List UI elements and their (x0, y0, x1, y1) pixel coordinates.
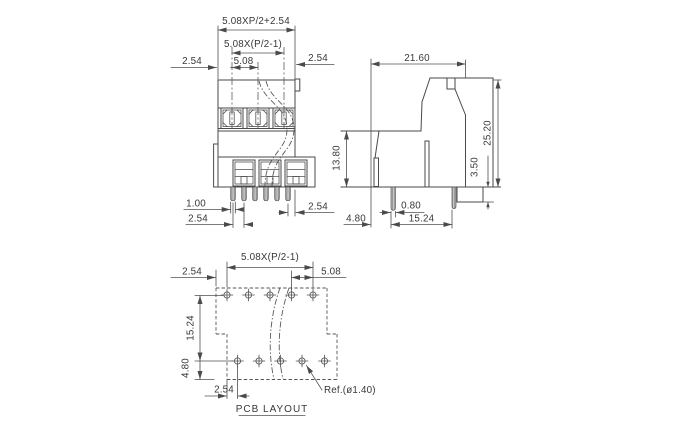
pcb-layout: 5.08X(P/2-1) 2.54 5.08 15.24 4.80 2.54 (171, 252, 376, 416)
pcb-hole-ref: Ref.(ø1.40) (324, 385, 376, 396)
dim-row-pitch: 15.24 (409, 214, 435, 225)
pcb-dim-stagger: 2.54 (214, 385, 234, 396)
pcb-layout-title: PCB LAYOUT (236, 404, 309, 415)
drawing-page: 5.08XP/2+2.54 5.08X(P/2-1) 2.54 5.08 2.5… (0, 0, 680, 440)
side-foot (457, 187, 483, 202)
front-dimensions-bottom: 1.00 2.54 2.54 (184, 190, 334, 228)
dim-overall-width: 5.08XP/2+2.54 (222, 16, 290, 27)
dim-pin-pitch: 2.54 (188, 214, 208, 225)
front-dimensions-top: 5.08XP/2+2.54 5.08X(P/2-1) 2.54 5.08 2.5… (171, 16, 334, 79)
dim-pitch: 5.08 (234, 56, 254, 67)
dim-right-margin: 2.54 (308, 53, 328, 64)
dim-right-offset: 2.54 (308, 202, 328, 213)
dim-side-pin-width: 0.80 (401, 201, 421, 212)
dim-pin-width: 1.00 (186, 199, 206, 210)
dim-body-height: 13.80 (332, 145, 343, 171)
front-side-tab (214, 144, 218, 187)
pcb-break-line (270, 288, 280, 379)
pcb-outline (216, 288, 337, 380)
dim-span: 5.08X(P/2-1) (224, 39, 282, 50)
side-inner-slot (425, 141, 429, 187)
dim-left-margin: 2.54 (182, 56, 202, 67)
technical-drawing: 5.08XP/2+2.54 5.08X(P/2-1) 2.54 5.08 2.5… (0, 0, 680, 440)
pcb-title-block: PCB LAYOUT (236, 404, 309, 416)
pcb-dim-row-pitch: 15.24 (186, 315, 197, 341)
side-front-tab (374, 158, 379, 187)
pcb-holes-top-row (221, 289, 319, 301)
front-view: 5.08XP/2+2.54 5.08X(P/2-1) 2.54 5.08 2.5… (171, 16, 334, 228)
front-top-flange (295, 79, 300, 91)
dim-peg-height: 3.50 (470, 157, 481, 177)
dim-height: 25.20 (483, 120, 494, 146)
pcb-dim-edge-offset: 4.80 (181, 358, 192, 378)
front-body-outline (214, 79, 315, 187)
dim-depth: 21.60 (404, 53, 430, 64)
pcb-holes-bottom-row (232, 355, 331, 367)
pcb-dim-pitch: 5.08 (321, 267, 341, 278)
pcb-dim-left-offset: 2.54 (182, 267, 202, 278)
pcb-dim-span: 5.08X(P/2-1) (241, 252, 299, 263)
side-body-outline (341, 78, 501, 202)
break-line (266, 81, 294, 186)
dim-pin-setback: 4.80 (346, 214, 366, 225)
front-pins (231, 187, 291, 201)
side-view: 21.60 25.20 13.80 3.50 0.80 4.80 15.24 (332, 53, 502, 228)
break-line (259, 81, 287, 186)
